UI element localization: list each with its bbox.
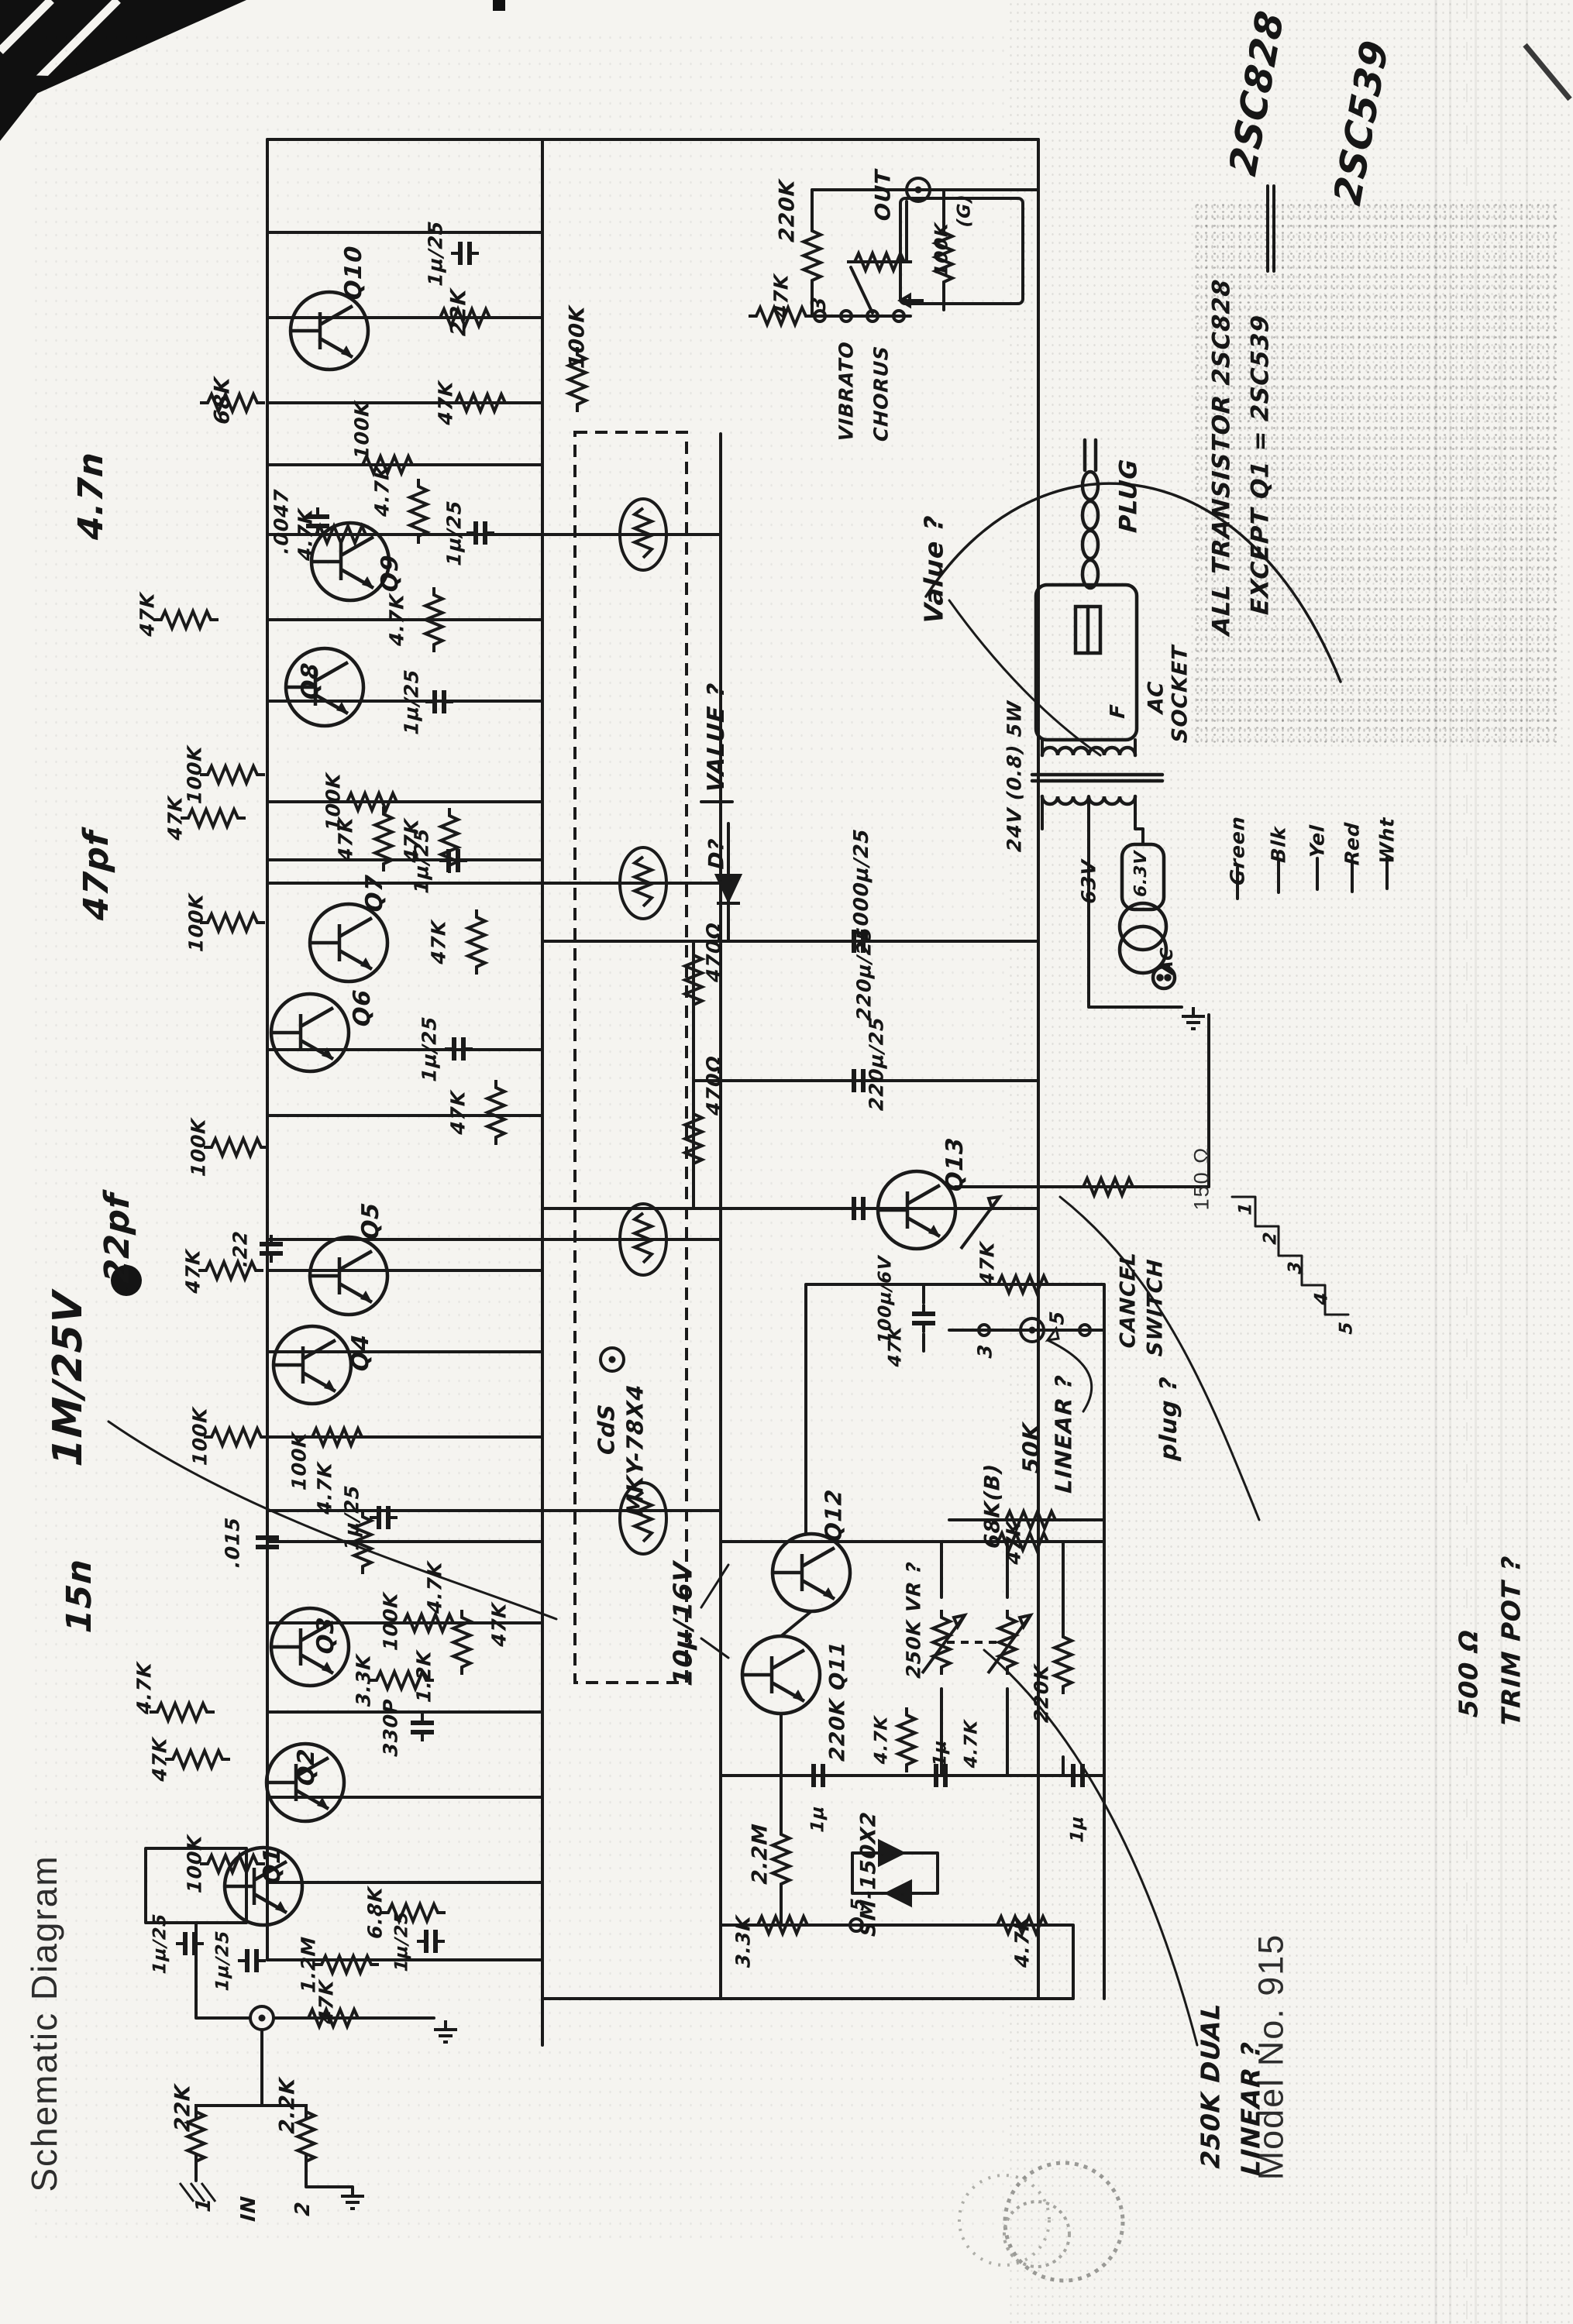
component-label: 100K: [189, 1117, 208, 1177]
component-label: MKY-78X4: [625, 1383, 647, 1517]
component-label: 4.7K: [873, 1715, 891, 1765]
component-label: Q6: [351, 988, 374, 1027]
component-label: 5: [850, 1897, 868, 1912]
callout-10u16v: [701, 1565, 728, 1658]
component-label: .0047: [272, 488, 291, 555]
component-label: 47K: [336, 816, 356, 862]
component-label: 10µ/16V: [670, 1560, 696, 1686]
component-label: 3: [976, 1343, 995, 1359]
component-label: 24V (0.8) 5W: [1005, 700, 1024, 852]
component-label: Q4: [349, 1333, 373, 1372]
sm150-diode: [879, 1841, 903, 1865]
component-label: 100K: [934, 222, 952, 277]
component-label: 1µ/25: [215, 1930, 232, 1992]
component-label: 5: [1048, 1310, 1067, 1325]
mid-jack: [601, 1348, 624, 1371]
component-label: Blk: [1269, 825, 1289, 863]
ground-symbol: [434, 2020, 457, 2042]
component-label: 4.7K: [315, 1461, 335, 1514]
ground-symbol: [341, 2187, 364, 2209]
component-label: 1µ/25: [426, 220, 446, 287]
component-label: 5: [1338, 1321, 1356, 1336]
component-label: 6.3V: [1133, 850, 1150, 898]
component-label: 100K: [185, 1834, 205, 1893]
component-label: F: [1108, 703, 1128, 720]
component-label: 1µ: [1069, 1815, 1087, 1844]
transformer-core: [1032, 775, 1162, 781]
component-label: 150 Ω: [1192, 1147, 1213, 1211]
component-label: 4.7K: [963, 1719, 981, 1769]
component-label: 1µ: [932, 1739, 950, 1768]
component-label: 250K DUAL: [1198, 2002, 1224, 2170]
component-label: 47K: [978, 1241, 997, 1287]
component-label: 3: [809, 296, 829, 312]
component-label: 47K: [317, 1979, 336, 2025]
component-label: 1µ/25: [394, 1910, 411, 1972]
component-label: 47pf: [80, 830, 114, 922]
component-label: 22K: [449, 287, 470, 336]
callout-1m25v: [108, 1422, 556, 1619]
component-label: 47K: [429, 920, 449, 965]
component-label: 4.7K: [373, 463, 392, 517]
component-label: Q13: [944, 1136, 967, 1192]
component-label: 15n: [63, 1558, 97, 1635]
component-label: 100K: [381, 1591, 401, 1651]
part-number-underline: [1268, 186, 1274, 271]
component-label: 4.7K: [135, 1661, 154, 1714]
component-label: 6.8K: [366, 1886, 385, 1939]
component-label: Q2: [295, 1748, 318, 1786]
component-label: 47K: [150, 1737, 170, 1783]
component-label: CdS: [596, 1403, 618, 1456]
component-label: 100K: [567, 304, 588, 369]
component-label: 22pf: [101, 1192, 135, 1284]
component-label: .015: [223, 1516, 243, 1568]
component-label: SWITCH: [1145, 1258, 1166, 1357]
component-label: 2.2M: [750, 1823, 771, 1886]
component-label: 47K: [184, 1249, 203, 1294]
component-label: 1µ/25: [342, 1484, 362, 1551]
transistor-note-line2: EXCEPT Q1 = 2SC539: [1249, 314, 1273, 616]
component-label: 68K: [212, 376, 233, 425]
component-label: Q12: [823, 1488, 845, 1542]
component-label: Q10: [342, 245, 366, 301]
component-label: 50K: [1021, 1422, 1043, 1474]
component-label: 22K: [173, 2083, 194, 2132]
component-label: 1M/25V: [48, 1290, 88, 1467]
component-label: 3.3K: [354, 1653, 373, 1707]
component-label: Red: [1343, 821, 1362, 866]
component-label: plug ?: [1158, 1376, 1181, 1462]
component-label: 47K: [138, 592, 157, 638]
component-label: 3: [1287, 1260, 1305, 1275]
transistor-note-line1: ALL TRANSISTOR 2SC828: [1210, 278, 1234, 636]
component-label: 220K: [777, 178, 798, 242]
component-label: .22: [231, 1229, 250, 1267]
component-label: 2: [293, 2201, 313, 2217]
component-label: Q3: [315, 1616, 338, 1655]
component-label: 4.7K: [387, 593, 407, 646]
component-label: 100K: [353, 400, 372, 459]
component-label: 470Ω: [704, 1054, 724, 1116]
component-label: Yel: [1308, 823, 1327, 858]
component-label: 1µ/25: [402, 669, 422, 735]
sm150-diode: [887, 1882, 910, 1905]
callout-sweep: [1060, 1197, 1259, 1520]
component-label: 47K: [490, 1602, 509, 1648]
component-label: Green: [1228, 815, 1248, 885]
schematic-drawing: [0, 0, 1573, 2324]
component-label: Q5: [360, 1202, 383, 1240]
component-label: IN: [239, 2195, 259, 2222]
component-label: 47K: [449, 1090, 468, 1136]
component-label: 4.7K: [296, 507, 315, 561]
component-label: LINEAR ?: [1053, 1373, 1076, 1494]
component-label: AC: [1159, 947, 1176, 975]
component-label: (G): [956, 194, 974, 229]
component-label: 250K VR ?: [904, 1561, 924, 1679]
component-label: SOCKET: [1170, 645, 1191, 744]
component-label: CANCEL: [1118, 1251, 1139, 1349]
ground-symbol: [1182, 1007, 1205, 1029]
component-label: 100K: [187, 892, 206, 952]
component-label: OUT: [873, 169, 894, 222]
component-label: Wht: [1378, 816, 1397, 865]
component-label: 220µ/25: [867, 1016, 886, 1111]
component-label: PLUG: [1117, 458, 1141, 534]
input-jack: [250, 2006, 274, 2030]
component-label: Q8: [299, 662, 322, 700]
component-label: 1: [194, 2197, 214, 2213]
component-label: 220K: [1032, 1663, 1052, 1723]
callout-250k-dual: [984, 1650, 1197, 2045]
component-label: 2: [1262, 1231, 1280, 1246]
component-label: 47K: [166, 796, 185, 841]
component-label: 47K: [1004, 1520, 1024, 1566]
component-label: AC: [1146, 680, 1167, 714]
component-label: VALUE ?: [705, 682, 728, 793]
component-label: 1µ/25: [412, 827, 432, 894]
component-label: 68K(B): [983, 1463, 1003, 1549]
plug-prongs: [1085, 440, 1096, 470]
component-label: 1µ: [810, 1805, 828, 1834]
component-label: 4.7K: [425, 1560, 445, 1614]
component-label: 500 Ω: [1456, 1628, 1482, 1718]
component-label: 47K: [772, 273, 791, 319]
component-label: CHORUS: [872, 345, 891, 442]
component-label: LINEAR ?: [1238, 2040, 1264, 2176]
component-label: 4.7K: [1013, 1914, 1032, 1968]
component-label: 1µ/25: [445, 500, 464, 566]
component-label: 47K: [436, 380, 456, 426]
component-label: 100K: [185, 744, 205, 804]
component-label: 1.2K: [415, 1649, 434, 1703]
component-label: 1µ/25: [420, 1016, 439, 1082]
component-label: Q1: [261, 1846, 284, 1885]
component-label: VIBRATO: [837, 341, 856, 442]
component-label: 220K Q11: [828, 1640, 848, 1762]
component-label: 4.7n: [74, 451, 108, 541]
component-label: 4: [1313, 1291, 1331, 1306]
component-label: 100K: [290, 1431, 309, 1490]
page-title: Schematic Diagram: [26, 1855, 62, 2192]
component-label: Q7: [363, 874, 387, 913]
scan-artifacts: [0, 0, 1570, 2324]
component-label: 2.2K: [277, 2077, 298, 2135]
component-label: D?: [707, 837, 728, 870]
component-label: 3.3K: [734, 1914, 753, 1968]
component-label: 100K: [191, 1406, 210, 1466]
component-label: Value ?: [921, 514, 947, 624]
scanned-schematic-page: Schematic Diagram Model No. 915 ALL TRAN…: [0, 0, 1573, 2324]
component-label: 1µ/25: [152, 1913, 170, 1975]
component-label: 330P: [381, 1698, 401, 1757]
component-label: SM-150X2: [859, 1810, 879, 1937]
transformer-primary: [1042, 748, 1135, 755]
component-label: 63V: [1079, 859, 1099, 905]
component-label: Q9: [379, 554, 402, 593]
component-label: 1000µ/25: [852, 827, 872, 941]
component-label: 47K: [887, 1325, 905, 1367]
component-label: TRIM POT ?: [1499, 1555, 1524, 1727]
component-label: 1: [1237, 1202, 1255, 1216]
component-label: 470Ω: [704, 921, 724, 982]
component-label: 220µ/25: [855, 926, 874, 1021]
